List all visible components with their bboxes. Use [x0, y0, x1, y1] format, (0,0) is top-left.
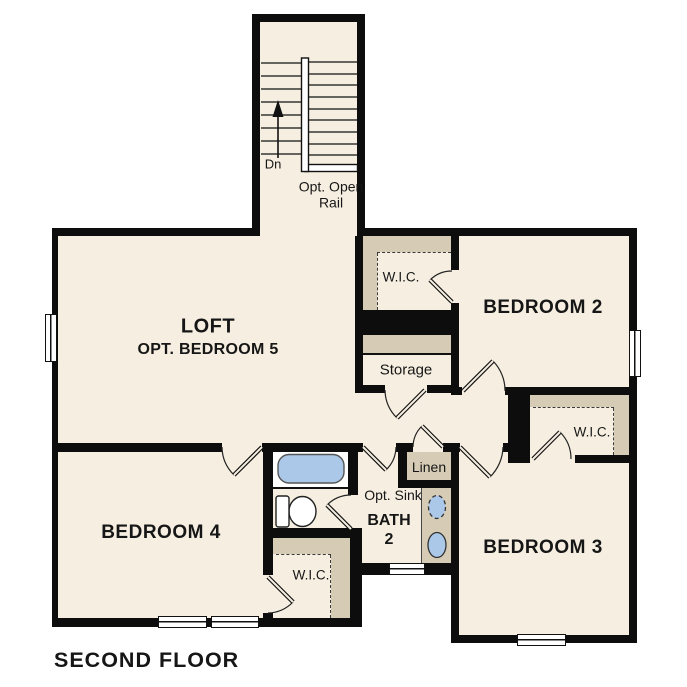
- wall: [443, 443, 460, 452]
- shelf-dash-line: [377, 252, 451, 253]
- page-title: SECOND FLOOR: [54, 648, 239, 673]
- wall: [505, 387, 637, 395]
- wall: [357, 228, 637, 236]
- wall: [262, 443, 363, 452]
- vanity-counter: [421, 488, 452, 563]
- wall: [348, 452, 358, 495]
- wic-bedroom2-label: W.I.C.: [383, 270, 420, 285]
- window: [389, 563, 425, 575]
- shelf-dash-line: [330, 555, 331, 618]
- closet-shelving: [363, 335, 451, 355]
- window: [211, 616, 259, 628]
- bedroom4-label: BEDROOM 4: [101, 522, 221, 544]
- wall: [52, 618, 362, 627]
- bath2-label-line2: 2: [367, 530, 410, 549]
- wall: [451, 387, 462, 395]
- bedroom2-label: BEDROOM 2: [483, 297, 603, 319]
- floor-plan: LOFT OPT. BEDROOM 5 BEDROOM 2 BEDROOM 3 …: [0, 0, 687, 687]
- wall: [355, 236, 363, 393]
- wall: [508, 395, 530, 463]
- shelf-dash-line: [276, 554, 331, 555]
- wall: [58, 443, 222, 452]
- loft-label: LOFT: [181, 316, 235, 339]
- closet-shelving: [530, 393, 630, 407]
- storage-label: Storage: [380, 362, 433, 379]
- wall: [252, 14, 365, 22]
- closet-shelving: [363, 252, 377, 310]
- wall: [451, 228, 459, 270]
- closet-shelving: [331, 554, 350, 618]
- window: [517, 634, 566, 646]
- wall: [252, 14, 260, 236]
- linen-label: Linen: [412, 459, 446, 475]
- open-rail-note-line1: Opt. Open: [299, 180, 364, 196]
- shelf-dash-line: [533, 407, 614, 408]
- wall: [350, 528, 362, 627]
- closet-shelving: [614, 407, 630, 455]
- window: [158, 616, 207, 628]
- loft-option-label: OPT. BEDROOM 5: [137, 341, 278, 359]
- wall: [355, 385, 385, 393]
- bath2-label: BATH 2: [367, 511, 410, 549]
- stairs-down-label: Dn: [265, 157, 282, 172]
- wall: [629, 228, 637, 643]
- opt-sink-label: Opt. Sink: [364, 487, 422, 503]
- window: [45, 314, 57, 362]
- bedroom3-label: BEDROOM 3: [483, 537, 603, 559]
- wic-bedroom4-label: W.I.C.: [293, 568, 330, 583]
- wall: [363, 310, 458, 335]
- wic-bedroom3-label: W.I.C.: [574, 425, 611, 440]
- wall: [263, 538, 273, 575]
- wall: [263, 613, 273, 627]
- wall: [263, 452, 273, 528]
- wall: [52, 228, 260, 236]
- closet-shelving: [363, 236, 451, 252]
- shelf-dash-line: [613, 408, 614, 455]
- wall: [575, 455, 630, 463]
- bath2-label-line1: BATH: [367, 511, 410, 530]
- open-rail-note: Opt. Open Rail: [299, 180, 364, 211]
- shelf-dash-line: [377, 253, 378, 310]
- wall: [52, 228, 58, 627]
- wall: [263, 528, 362, 538]
- closet-shelving: [273, 538, 350, 554]
- window: [629, 330, 641, 377]
- open-rail-note-line2: Rail: [299, 195, 364, 211]
